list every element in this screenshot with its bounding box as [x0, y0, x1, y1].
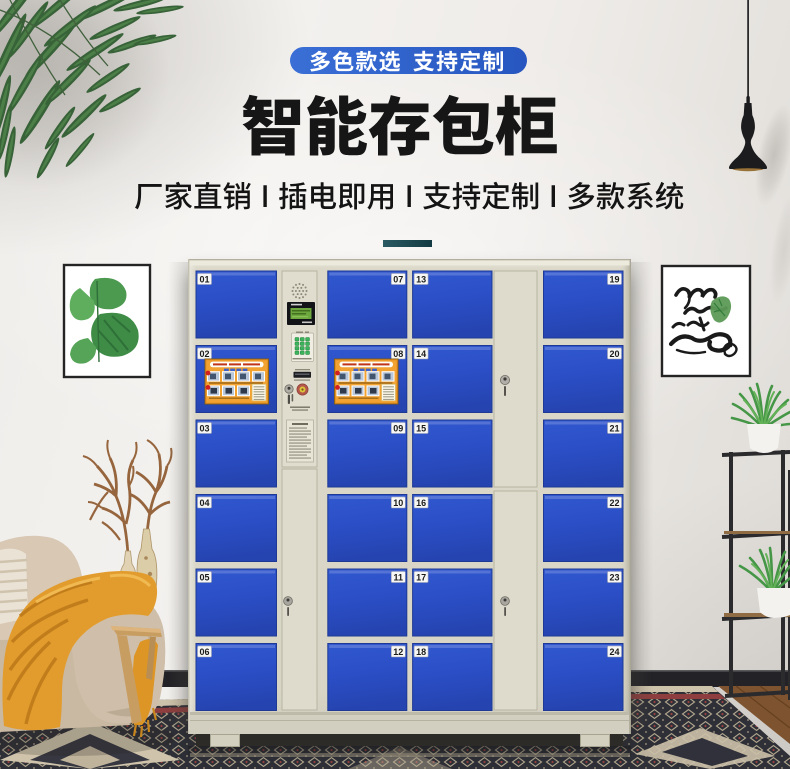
svg-text:02: 02	[199, 349, 209, 359]
svg-text:20: 20	[609, 349, 619, 359]
svg-text:06: 06	[199, 647, 209, 657]
svg-text:22: 22	[609, 498, 619, 508]
svg-text:01: 01	[199, 274, 209, 284]
svg-text:16: 16	[416, 498, 426, 508]
svg-text:09: 09	[393, 423, 403, 433]
svg-text:05: 05	[199, 572, 209, 582]
svg-text:07: 07	[393, 274, 403, 284]
svg-text:10: 10	[393, 498, 403, 508]
svg-text:03: 03	[199, 423, 209, 433]
svg-text:24: 24	[609, 647, 619, 657]
svg-text:14: 14	[416, 349, 426, 359]
svg-text:15: 15	[416, 423, 426, 433]
svg-text:18: 18	[416, 647, 426, 657]
svg-text:08: 08	[393, 349, 403, 359]
svg-text:19: 19	[609, 274, 619, 284]
svg-text:21: 21	[609, 423, 619, 433]
svg-text:17: 17	[416, 572, 426, 582]
svg-text:12: 12	[393, 647, 403, 657]
svg-text:11: 11	[394, 572, 404, 582]
svg-text:04: 04	[199, 498, 209, 508]
svg-text:13: 13	[416, 274, 426, 284]
svg-text:23: 23	[609, 572, 619, 582]
